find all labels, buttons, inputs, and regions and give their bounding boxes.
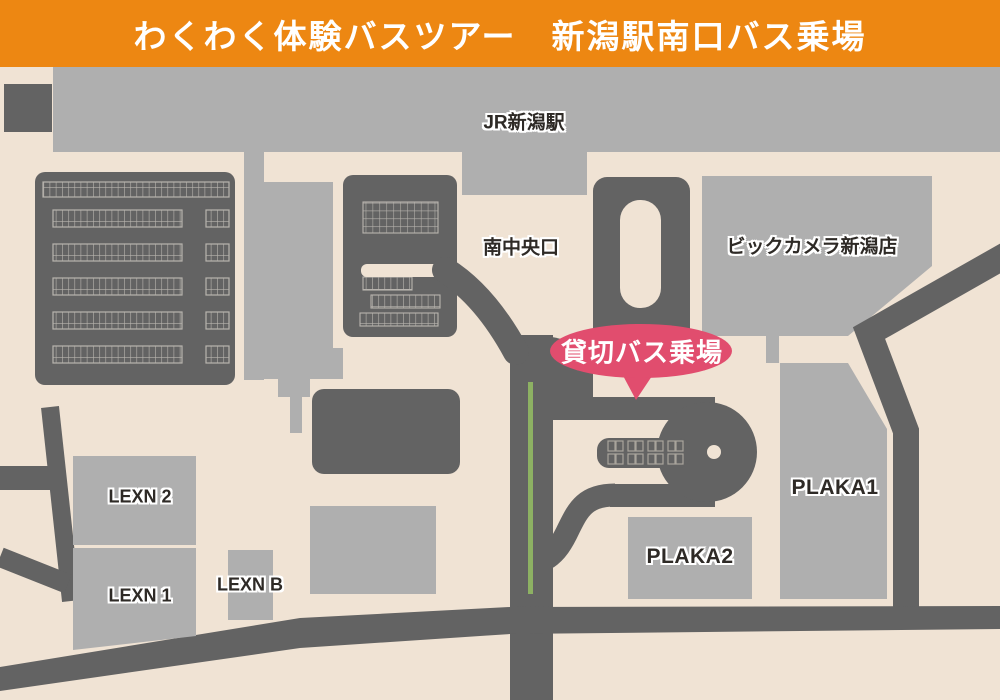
gray-building-center bbox=[310, 506, 436, 594]
label-south-central-exit: 南中央口 bbox=[483, 233, 559, 260]
label-lexn1: LEXN 1 bbox=[108, 586, 171, 607]
parking-structure-center bbox=[343, 175, 457, 337]
bus-stall-island bbox=[597, 438, 690, 468]
parking-structure-west bbox=[35, 172, 235, 385]
label-lexn2: LEXN 2 bbox=[108, 487, 171, 508]
bus-stop-map: わくわく体験バスツアー 新潟駅南口バス乗場 JR新潟駅 南中央口 ビックカメラ新… bbox=[0, 0, 1000, 700]
label-plaka2: PLAKA2 bbox=[646, 545, 733, 569]
page-title: わくわく体験バスツアー 新潟駅南口バス乗場 bbox=[0, 0, 1000, 67]
charter-bus-stop-label: 貸切バス乗場 bbox=[561, 333, 723, 370]
south-exit-entrance-block bbox=[462, 151, 587, 195]
label-lexnb: LEXN B bbox=[217, 575, 283, 596]
small-building-topleft bbox=[4, 84, 52, 132]
dark-building-center bbox=[312, 389, 460, 474]
green-guide-line bbox=[528, 382, 533, 594]
label-plaka1: PLAKA1 bbox=[791, 476, 878, 500]
label-jr-station: JR新潟駅 bbox=[483, 108, 564, 135]
label-bic-camera: ビックカメラ新潟店 bbox=[726, 232, 897, 259]
